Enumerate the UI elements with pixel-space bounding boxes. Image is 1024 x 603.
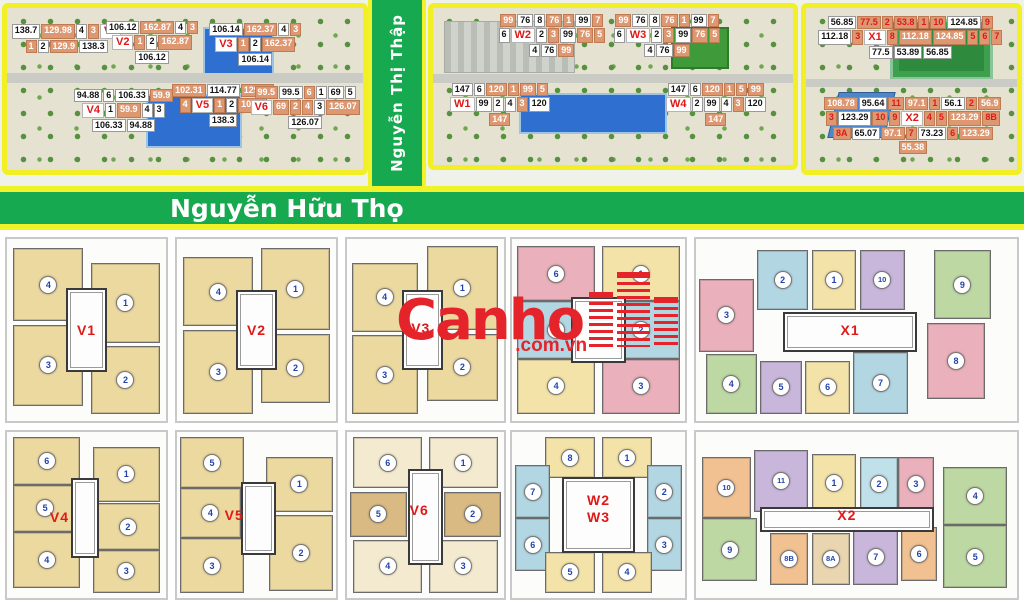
unit-badge-8: 8 — [947, 352, 965, 370]
building-label-v2: V2 — [112, 35, 133, 50]
site-building-w4: 14761201599W429943120147 — [660, 83, 772, 126]
area-value: 53.89 — [894, 46, 923, 59]
area-value: 120 — [486, 83, 507, 96]
unit-badge-2: 2 — [286, 359, 304, 377]
siteplan-panel-x: 56.8577.5253.8110124.859112.183X18112.18… — [801, 3, 1022, 175]
unit-badge-6: 6 — [38, 452, 56, 470]
area-value: 6 — [304, 86, 315, 99]
unit-badge-2: 2 — [292, 544, 310, 562]
area-value: 59.9 — [117, 103, 141, 118]
area-value: 77.5 — [857, 16, 881, 29]
area-value: 4 — [505, 97, 516, 112]
area-value: 106.33 — [92, 119, 126, 132]
unit-badge-4: 4 — [379, 557, 397, 575]
area-value: 73.23 — [918, 127, 947, 140]
area-value: 11 — [888, 97, 904, 110]
building-icon — [589, 272, 678, 347]
unit-badge-11: 11 — [772, 472, 790, 490]
area-value: 76 — [656, 44, 672, 57]
unit-badge-1: 1 — [116, 294, 134, 312]
area-value: 147 — [489, 113, 510, 126]
area-value: 99 — [560, 28, 576, 43]
building-label-w3: W3 — [626, 28, 651, 43]
area-value: 112.18 — [818, 30, 851, 45]
area-value: 162.87 — [140, 21, 174, 34]
unit-badge-5: 5 — [772, 378, 790, 396]
area-value: 1 — [724, 83, 735, 96]
area-value: 76 — [577, 28, 593, 43]
area-value: 2 — [692, 97, 703, 112]
floorplan-card-v6: 615243V6 — [345, 430, 506, 600]
area-value: 10 — [872, 111, 888, 126]
unit-badge-4: 4 — [966, 487, 984, 505]
plan-label-v2: V2 — [247, 322, 266, 338]
unit-badge-1: 1 — [825, 271, 843, 289]
unit-badge-2: 2 — [870, 475, 888, 493]
area-value: 1 — [679, 14, 690, 27]
area-value: 99 — [704, 97, 720, 112]
building-label-v5: V5 — [192, 98, 213, 113]
area-value: 5 — [345, 86, 356, 99]
area-value: 2 — [290, 100, 301, 115]
area-value: 120 — [745, 97, 766, 112]
area-value: 56.85 — [828, 16, 857, 29]
site-building-w2: 997687619976W2239976547699 — [498, 14, 606, 57]
area-value: 76 — [517, 14, 533, 27]
site-building-v4: 94.886106.3359.9V4159.943106.3394.88 — [68, 89, 180, 132]
area-value: 123.29 — [948, 111, 982, 126]
unit-badge-8b: 8B — [780, 550, 798, 568]
unit-badge-4: 4 — [38, 551, 56, 569]
watermark-text: Canho .com.vn — [396, 293, 583, 349]
area-value: 138.3 — [209, 114, 238, 127]
unit-badge-3: 3 — [203, 557, 221, 575]
street-label-horizontal: Nguyễn Hữu Thọ — [170, 194, 404, 223]
area-value: 99 — [691, 14, 707, 27]
area-value: 2 — [38, 40, 49, 53]
area-value: 120 — [702, 83, 723, 96]
area-value: 147 — [452, 83, 473, 96]
area-value: 162.37 — [244, 23, 278, 36]
unit-badge-10: 10 — [717, 479, 735, 497]
building-label-w1: W1 — [450, 97, 475, 112]
unit-badge-4: 4 — [547, 377, 565, 395]
area-value: 76 — [692, 28, 708, 43]
area-value: 3 — [187, 21, 198, 34]
area-value: 99 — [520, 83, 536, 96]
unit-badge-9: 9 — [953, 276, 971, 294]
area-value: 2 — [250, 37, 261, 52]
site-building-v6: 99.599.561695V669243126.07126.07 — [249, 86, 361, 129]
unit-badge-8: 8 — [561, 449, 579, 467]
area-value: 2 — [146, 35, 157, 50]
site-building-v3: 106.14162.3743V312162.37106.14 — [199, 23, 311, 66]
area-value: 1 — [134, 35, 145, 50]
area-value: 7 — [592, 14, 603, 27]
area-value: 106.12 — [135, 51, 169, 64]
area-value: 124.85 — [947, 16, 981, 29]
area-value: 3 — [663, 28, 674, 43]
area-value: 99 — [615, 14, 631, 27]
unit-badge-9: 9 — [721, 541, 739, 559]
area-value: 162.87 — [158, 35, 192, 50]
site-building-w1: 14761201995W199243120147 — [444, 83, 556, 126]
area-value: 2 — [493, 97, 504, 112]
elevator-core — [241, 482, 276, 555]
building-label-x2: X2 — [901, 111, 922, 126]
area-value: 99 — [575, 14, 591, 27]
area-value: 106.14 — [238, 53, 272, 66]
unit-badge-4: 4 — [209, 283, 227, 301]
plan-label-w3: W3 — [587, 509, 610, 525]
internal-road — [7, 73, 363, 83]
unit-badge-5: 5 — [966, 548, 984, 566]
area-value: 3 — [154, 103, 165, 118]
area-value: 114.77 — [207, 84, 240, 97]
area-value: 106.14 — [209, 23, 243, 36]
tower-shape — [617, 272, 650, 347]
area-value: 5 — [736, 83, 747, 96]
area-value: 106.12 — [106, 21, 140, 34]
plan-label-w2: W2 — [587, 492, 610, 508]
internal-road — [806, 79, 1017, 87]
area-value: 76 — [661, 14, 677, 27]
floorplan-card-x2: 1011123498B8A765X2 — [694, 430, 1019, 600]
siteplan-panel-v: 138.7129.9843V112129.9138.3106.12162.874… — [2, 3, 368, 175]
unit-badge-6: 6 — [524, 536, 542, 554]
area-value: 69 — [328, 86, 344, 99]
area-value: 4 — [529, 44, 540, 57]
area-value: 5 — [936, 111, 947, 126]
area-value: 6 — [947, 127, 958, 140]
site-building-v2: 106.12162.8743V212162.87106.12 — [96, 21, 208, 64]
unit-badge-7: 7 — [872, 374, 890, 392]
unit-badge-5: 5 — [369, 505, 387, 523]
area-value: 4 — [142, 103, 153, 118]
area-value: 6 — [614, 28, 625, 43]
area-value: 6 — [499, 28, 510, 43]
area-value: 76 — [541, 44, 557, 57]
site-building-x2: 108.7895.641197.1156.1256.93123.29109X24… — [823, 97, 1003, 154]
area-value: 138.7 — [12, 24, 41, 39]
unit-badge-1: 1 — [290, 475, 308, 493]
area-value: 3 — [852, 30, 863, 45]
unit-badge-2: 2 — [774, 271, 792, 289]
area-value: 3 — [517, 97, 528, 112]
plan-label-v6: V6 — [410, 502, 429, 518]
unit-badge-4: 4 — [722, 375, 740, 393]
floorplan-card-v1: 4132V1 — [5, 237, 168, 423]
area-value: 124.85 — [933, 30, 967, 45]
area-value: 76 — [546, 14, 562, 27]
plan-label-v4: V4 — [50, 509, 69, 525]
unit-badge-4: 4 — [376, 288, 394, 306]
internal-road — [433, 74, 793, 83]
area-value: 147 — [705, 113, 726, 126]
floorplan-card-v5: 54312V5 — [175, 430, 338, 600]
building-label-v3: V3 — [215, 37, 236, 52]
building-label-w4: W4 — [666, 97, 691, 112]
siteplan-panel-w: 997687619976W2239976547699997687619976W3… — [428, 3, 798, 170]
plan-label-x2: X2 — [837, 507, 856, 523]
unit-badge-2: 2 — [119, 518, 137, 536]
area-value: 3 — [733, 97, 744, 112]
area-value: 56.9 — [978, 97, 1002, 110]
area-value: 3 — [314, 100, 325, 115]
area-value: 5 — [709, 28, 720, 43]
area-value: 3 — [548, 28, 559, 43]
unit-badge-3: 3 — [376, 366, 394, 384]
floorplan-card-x1: 32110945678X1 — [694, 237, 1019, 423]
area-value: 99.5 — [255, 86, 279, 99]
area-value: 99.5 — [279, 86, 303, 99]
unit-badge-1: 1 — [825, 474, 843, 492]
building-label-v6: V6 — [251, 100, 272, 115]
area-value: 1 — [26, 40, 37, 53]
area-value: 1 — [508, 83, 519, 96]
building-label-w2: W2 — [511, 28, 536, 43]
unit-badge-4: 4 — [39, 276, 57, 294]
plan-label-x1: X1 — [841, 322, 860, 338]
area-value: 126.07 — [288, 116, 322, 129]
area-value: 9 — [982, 16, 993, 29]
area-value: 129.98 — [41, 24, 75, 39]
area-value: 7 — [708, 14, 719, 27]
area-value: 6 — [979, 30, 990, 45]
area-value: 56.85 — [923, 46, 952, 59]
area-value: 112.18 — [899, 30, 932, 45]
area-value: 99 — [675, 28, 691, 43]
tower-shape — [654, 297, 678, 347]
unit-badge-3: 3 — [454, 557, 472, 575]
area-value: 2 — [536, 28, 547, 43]
unit-badge-7: 7 — [524, 483, 542, 501]
floorplan-card-v4: 654123V4 — [5, 430, 168, 600]
area-value: 5 — [537, 83, 548, 96]
area-value: 8 — [887, 30, 898, 45]
area-value: 10 — [930, 16, 946, 29]
unit-badge-3: 3 — [907, 475, 925, 493]
area-value: 1 — [918, 16, 929, 29]
unit-badge-8a: 8A — [822, 550, 840, 568]
unit-badge-3: 3 — [209, 363, 227, 381]
area-value: 126.07 — [326, 100, 360, 115]
area-value: 6 — [474, 83, 485, 96]
area-value: 3 — [290, 23, 301, 36]
unit-badge-3: 3 — [632, 377, 650, 395]
area-value: 4 — [302, 100, 313, 115]
area-value: 65.07 — [852, 127, 881, 140]
area-value: 94.88 — [127, 119, 156, 132]
site-building-w3: 997687619976W3239976547699 — [613, 14, 721, 57]
area-value: 8A — [833, 127, 851, 140]
area-value: 5 — [594, 28, 605, 43]
area-value: 102.31 — [172, 84, 206, 97]
area-value: 9 — [889, 111, 900, 126]
area-value: 106.33 — [115, 89, 149, 102]
street-nguyen-thi-thap: Nguyễn Thị Thập — [368, 0, 426, 186]
area-value: 1 — [238, 37, 249, 52]
building-label-v4: V4 — [82, 103, 103, 118]
area-value: 129.9 — [50, 40, 79, 53]
area-value: 8 — [649, 14, 660, 27]
area-value: 162.37 — [262, 37, 296, 52]
area-value: 8B — [982, 111, 1000, 126]
unit-badge-1: 1 — [454, 454, 472, 472]
area-value: 99 — [748, 83, 764, 96]
unit-badge-1: 1 — [618, 449, 636, 467]
area-value: 7 — [906, 127, 917, 140]
area-value: 99 — [476, 97, 492, 112]
area-value: 99 — [558, 44, 574, 57]
unit-badge-3: 3 — [655, 536, 673, 554]
area-value: 123.29 — [959, 127, 993, 140]
siteplan-strip: 138.7129.9843V112129.9138.3106.12162.874… — [0, 0, 1024, 186]
building-label-x1: X1 — [864, 30, 885, 45]
unit-badge-7: 7 — [867, 548, 885, 566]
area-value: 2 — [966, 97, 977, 110]
unit-badge-1: 1 — [117, 465, 135, 483]
area-value: 147 — [668, 83, 689, 96]
area-value: 97.1 — [881, 127, 905, 140]
plan-label-v1: V1 — [77, 322, 96, 338]
area-value: 94.88 — [74, 89, 103, 102]
area-value: 4 — [644, 44, 655, 57]
area-value: 95.64 — [859, 97, 888, 110]
unit-badge-1: 1 — [286, 280, 304, 298]
area-value: 2 — [882, 16, 893, 29]
unit-badge-3: 3 — [117, 562, 135, 580]
area-value: 7 — [991, 30, 1002, 45]
area-value: 6 — [690, 83, 701, 96]
area-value: 4 — [180, 98, 191, 113]
area-value: 6 — [103, 89, 114, 102]
unit-badge-3: 3 — [717, 306, 735, 324]
area-value: 8 — [534, 14, 545, 27]
area-value: 4 — [278, 23, 289, 36]
area-value: 1 — [929, 97, 940, 110]
area-value: 2 — [651, 28, 662, 43]
floorplan-card-w2w3: 81726354W2W3 — [510, 430, 687, 600]
area-value: 123.29 — [838, 111, 872, 126]
canho-watermark: Canho .com.vn — [396, 272, 678, 349]
plan-label-v5: V5 — [225, 507, 244, 523]
area-value: 1 — [563, 14, 574, 27]
unit-badge-2: 2 — [464, 505, 482, 523]
area-value: 55.38 — [899, 141, 928, 154]
unit-badge-5: 5 — [561, 563, 579, 581]
unit-badge-2: 2 — [453, 358, 471, 376]
unit-badge-5: 5 — [203, 454, 221, 472]
area-value: 56.1 — [941, 97, 965, 110]
area-value: 4 — [76, 24, 87, 39]
unit-badge-2: 2 — [116, 371, 134, 389]
area-value: 97.1 — [905, 97, 929, 110]
unit-badge-4: 4 — [201, 504, 219, 522]
unit-badge-6: 6 — [910, 545, 928, 563]
area-value: 120 — [529, 97, 550, 112]
area-value: 4 — [924, 111, 935, 126]
street-nguyen-huu-tho: Nguyễn Hữu Thọ — [0, 186, 1024, 230]
area-value: 76 — [632, 14, 648, 27]
floorplan-card-v2: 4132V2 — [175, 237, 338, 423]
street-label-vertical: Nguyễn Thị Thập — [388, 14, 406, 172]
area-value: 99 — [500, 14, 516, 27]
site-building-x1: 56.8577.5253.8110124.859112.183X18112.18… — [812, 16, 1008, 59]
area-value: 4 — [721, 97, 732, 112]
unit-badge-6: 6 — [819, 378, 837, 396]
area-value: 5 — [967, 30, 978, 45]
masterplan-page: 138.7129.9843V112129.9138.3106.12162.874… — [0, 0, 1024, 603]
area-value: 69 — [273, 100, 289, 115]
area-value: 1 — [214, 98, 225, 113]
unit-badge-3: 3 — [39, 356, 57, 374]
area-value: 3 — [826, 111, 837, 126]
unit-badge-10: 10 — [873, 271, 891, 289]
tower-shape — [589, 292, 613, 347]
elevator-core — [71, 478, 100, 558]
area-value: 4 — [175, 21, 186, 34]
unit-badge-2: 2 — [655, 483, 673, 501]
area-value: 77.5 — [869, 46, 893, 59]
area-value: 1 — [316, 86, 327, 99]
unit-badge-6: 6 — [379, 454, 397, 472]
watermark-suffix: .com.vn — [515, 335, 587, 357]
area-value: 53.8 — [894, 16, 918, 29]
area-value: 99 — [674, 44, 690, 57]
area-value: 2 — [226, 98, 237, 113]
area-value: 108.78 — [824, 97, 858, 110]
unit-badge-4: 4 — [618, 563, 636, 581]
area-value: 1 — [105, 103, 116, 118]
